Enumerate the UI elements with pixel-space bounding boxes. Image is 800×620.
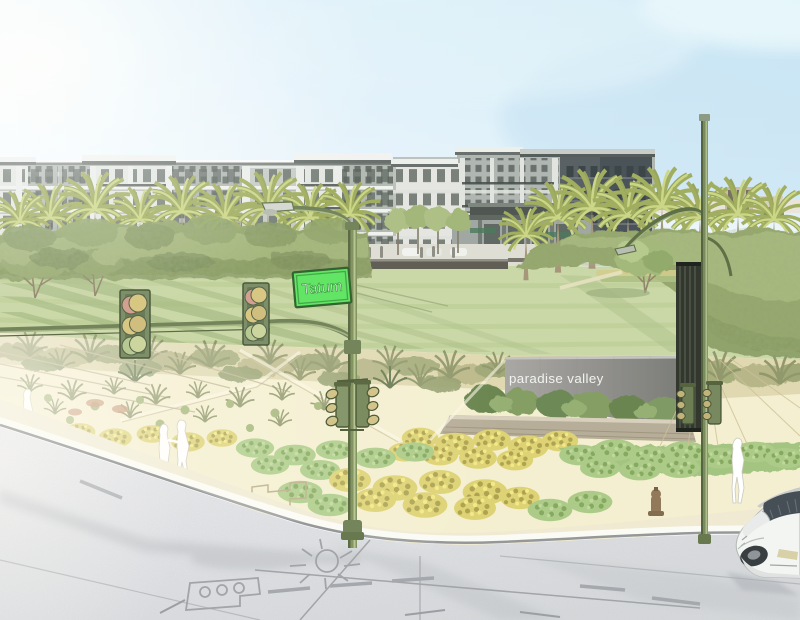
svg-text:Tatum: Tatum [301, 278, 343, 298]
